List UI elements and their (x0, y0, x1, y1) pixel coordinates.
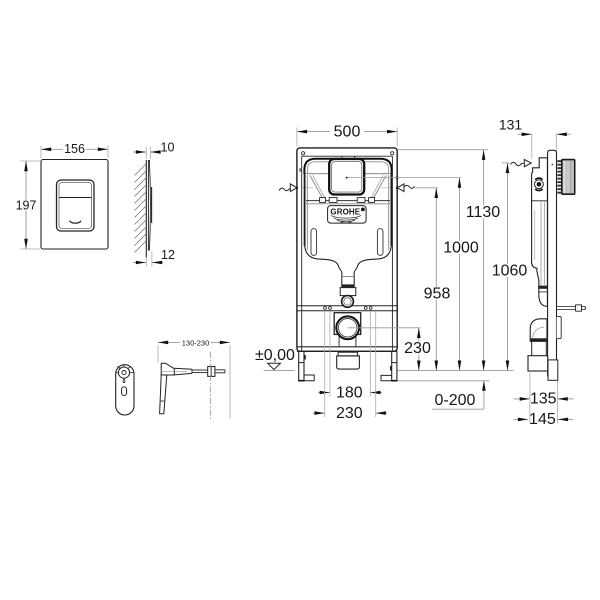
svg-text:135: 135 (530, 391, 557, 408)
svg-text:230: 230 (336, 405, 363, 422)
svg-text:197: 197 (16, 199, 37, 213)
svg-text:1130: 1130 (466, 204, 501, 221)
svg-text:12: 12 (161, 248, 175, 262)
svg-text:156: 156 (64, 142, 85, 156)
svg-text:131: 131 (499, 117, 523, 133)
svg-text:GROHE: GROHE (330, 208, 360, 217)
svg-text:1060: 1060 (492, 262, 528, 279)
svg-text:230: 230 (404, 340, 431, 357)
svg-text:130-230: 130-230 (182, 338, 210, 347)
svg-text:±0,00: ±0,00 (255, 347, 295, 364)
svg-text:145: 145 (529, 411, 556, 428)
svg-text:10: 10 (161, 141, 175, 155)
svg-text:1000: 1000 (443, 239, 479, 256)
svg-text:958: 958 (424, 286, 451, 303)
svg-text:180: 180 (336, 384, 363, 401)
svg-text:500: 500 (334, 123, 361, 140)
svg-text:0-200: 0-200 (435, 392, 476, 409)
